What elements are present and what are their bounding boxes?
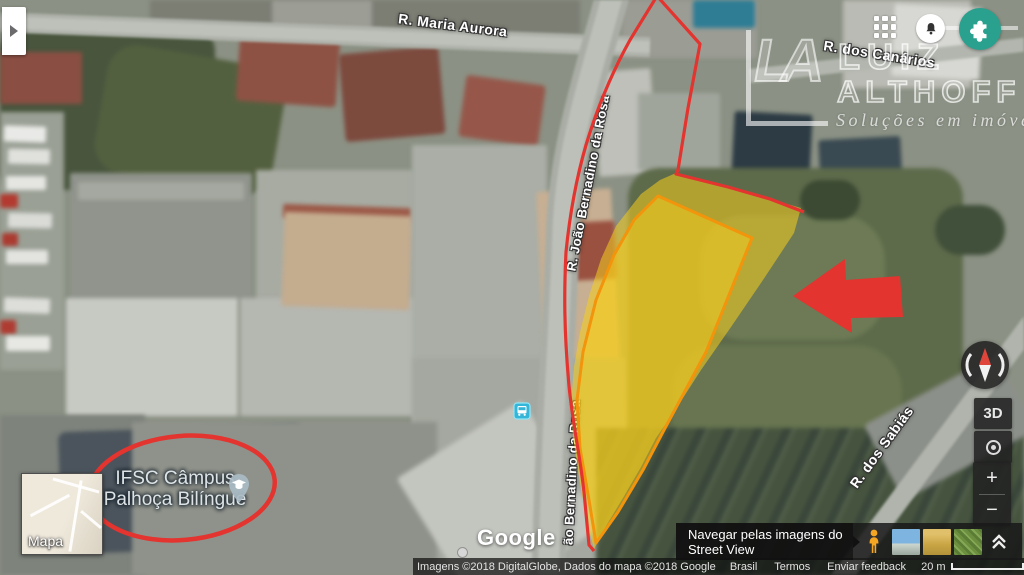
map-feature <box>693 0 755 28</box>
map-feature <box>281 212 412 310</box>
education-pin-icon[interactable] <box>227 474 251 504</box>
zoom-control: + − <box>973 462 1011 526</box>
rotate-left-arrow-icon <box>967 354 971 376</box>
country-link[interactable]: Brasil <box>730 561 758 573</box>
map-feature <box>8 213 52 229</box>
compass-needle-north <box>979 348 991 365</box>
apps-grid-icon[interactable] <box>874 16 896 38</box>
map-feature <box>6 176 46 190</box>
3d-view-button[interactable]: 3D <box>974 398 1012 429</box>
map-feature <box>6 336 50 351</box>
collapse-strip-button[interactable] <box>982 533 1016 551</box>
poi-dot <box>457 547 468 558</box>
tooltip-line2: Street View <box>688 542 843 557</box>
notification-bell-button[interactable] <box>916 14 945 43</box>
map-feature <box>6 250 48 264</box>
street-view-thumbnail-grass[interactable] <box>954 529 982 555</box>
map-feature <box>272 0 372 36</box>
bell-icon <box>923 21 939 37</box>
google-logo: Google <box>477 525 556 551</box>
inset-road <box>53 477 100 493</box>
map-feature <box>700 215 885 340</box>
map-feature <box>458 75 546 148</box>
map-feature <box>78 182 244 200</box>
street-view-thumbnail-sky[interactable] <box>892 529 920 555</box>
map-feature <box>0 194 18 208</box>
map-feature <box>240 298 422 416</box>
map-feature <box>800 180 860 220</box>
feedback-link[interactable]: Enviar feedback <box>827 561 906 573</box>
tooltip-line1: Navegar pelas imagens do <box>688 527 843 542</box>
map-feature <box>638 93 720 170</box>
map-feature <box>66 298 238 416</box>
street-view-strip: Navegar pelas imagens do Street View <box>676 523 1022 560</box>
double-chevron-up-icon <box>989 533 1009 551</box>
zoom-out-button[interactable]: − <box>973 495 1011 527</box>
zoom-in-button[interactable]: + <box>973 462 1011 494</box>
inset-road <box>30 494 70 517</box>
rotate-right-arrow-icon <box>999 354 1003 376</box>
scale-bar <box>951 563 1024 570</box>
map-feature <box>0 52 82 104</box>
scale-label: 20 m <box>921 561 945 573</box>
attribution-bar: Imagens ©2018 DigitalGlobe, Dados do map… <box>413 558 1024 575</box>
map-feature <box>4 125 47 142</box>
tooltip-arrow <box>853 536 860 548</box>
puzzle-icon <box>967 16 993 42</box>
compass-control[interactable] <box>961 341 1009 389</box>
my-location-button[interactable] <box>974 431 1012 463</box>
map-type-label: Mapa <box>28 533 63 549</box>
bus-stop-icon[interactable] <box>513 402 531 420</box>
google-maps-satellite-view[interactable]: R. Maria Aurora R. dos Canários R. João … <box>0 0 1024 575</box>
map-feature <box>2 233 18 246</box>
street-view-thumbnail-field[interactable] <box>923 529 951 555</box>
map-type-toggle[interactable]: Mapa <box>21 473 103 555</box>
map-feature <box>236 33 340 108</box>
inset-road <box>68 480 82 552</box>
map-feature <box>935 205 1005 255</box>
terms-link[interactable]: Termos <box>774 561 810 573</box>
puzzle-extension-button[interactable] <box>959 8 1001 50</box>
compass-needle-south <box>979 365 991 382</box>
pegman-icon[interactable] <box>859 527 889 557</box>
chevron-right-icon <box>10 25 18 37</box>
map-feature <box>0 320 16 334</box>
location-target-icon <box>986 440 1001 455</box>
map-feature <box>338 46 445 142</box>
map-feature <box>557 221 618 282</box>
imagery-credits: Imagens ©2018 DigitalGlobe, Dados do map… <box>417 561 716 573</box>
inset-road <box>80 510 102 529</box>
map-feature <box>4 297 50 314</box>
street-view-tooltip: Navegar pelas imagens do Street View <box>676 523 853 560</box>
expand-panel-button[interactable] <box>2 7 26 55</box>
map-feature <box>8 149 50 165</box>
